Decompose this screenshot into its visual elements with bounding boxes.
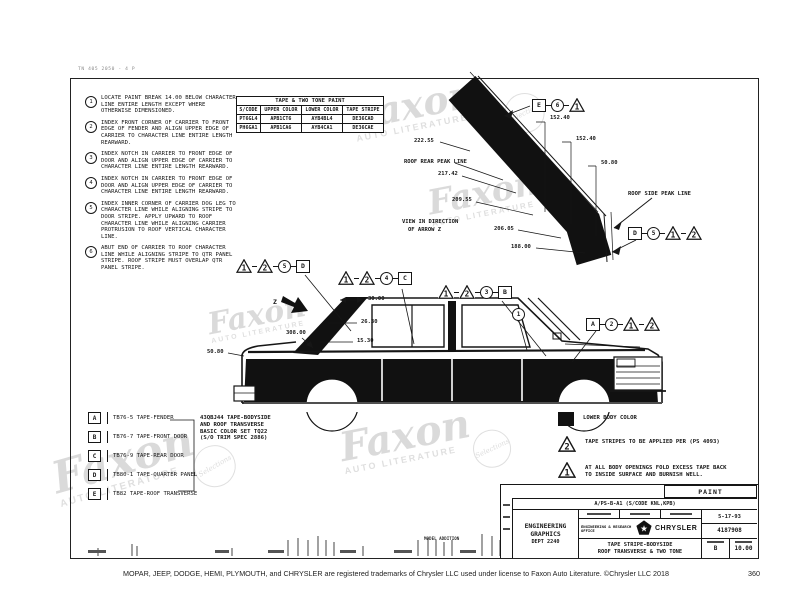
part-row: ATB76-5 TAPE-FENDER — [88, 412, 197, 424]
lower-body-color-label: LOWER BODY COLOR — [583, 412, 637, 422]
note-number: 3 — [85, 152, 97, 164]
square-callout-icon: B — [498, 286, 512, 299]
paint-table-title: TAPE & TWO TONE PAINT — [237, 97, 384, 106]
svg-text:1: 1 — [344, 276, 349, 285]
dim-217-42: 217.42 — [438, 171, 458, 177]
sheet-cell: B — [701, 539, 729, 558]
square-callout-icon: C — [398, 272, 412, 285]
dim-152-40-a: 152.40 — [550, 115, 570, 121]
circle-callout-icon: 4 — [380, 272, 393, 285]
parts-note-line: 43QBJ44 TAPE-BODYSIDE — [200, 415, 271, 422]
dim-50-80-rear: 50.80 — [207, 349, 224, 355]
tape-stripe-note: TAPE STRIPES TO BE APPLIED PER (PS 4093) — [585, 436, 720, 446]
note-text: INDEX NOTCH IN CARRIER TO FRONT EDGE OF … — [101, 176, 237, 196]
part-code-box: A — [88, 412, 101, 424]
roof-rear-peak-line-label: ROOF REAR PEAK LINE — [404, 159, 467, 165]
fold-note-line: TO INSIDE SURFACE AND BURNISH WELL. — [585, 472, 726, 479]
part-code-box: B — [88, 431, 101, 443]
view-direction-label2: OF ARROW Z — [408, 227, 441, 233]
tape-parts-legend: ATB76-5 TAPE-FENDER BTB76-7 TAPE-FRONT D… — [88, 412, 197, 500]
svg-text:★: ★ — [640, 524, 648, 534]
sheet-value: B — [702, 545, 729, 552]
part-code-box: E — [88, 488, 101, 500]
drawing-title-cell: TAPE STRIPE-BODYSIDE ROOF TRANSVERSE & T… — [579, 539, 701, 558]
roof-side-callout-group: D512 — [628, 226, 702, 240]
triangle-callout-icon: 1 — [665, 226, 681, 240]
roof-side-peak-line-label: ROOF SIDE PEAK LINE — [628, 191, 691, 197]
fold-tape-note: AT ALL BODY OPENINGS FOLD EXCESS TAPE BA… — [585, 462, 726, 478]
view-z-arrow — [281, 296, 308, 313]
basic-color-set-note: 43QBJ44 TAPE-BODYSIDE AND ROOF TRANSVERS… — [200, 415, 271, 442]
triangle-callout-icon: 1 — [236, 259, 252, 273]
pentastar-logo-icon: ★ — [636, 520, 652, 538]
lower-body-color-row: LOWER BODY COLOR — [558, 412, 726, 426]
title-block-side-strip — [501, 498, 513, 558]
note-number: 2 — [85, 121, 97, 133]
part-code-box: D — [88, 469, 101, 481]
part-row: BTB76-7 TAPE-FRONT DOOR — [88, 431, 197, 443]
circle-callout-icon: 3 — [480, 286, 493, 299]
parts-note-line: (S/O TRIM SPEC 2886) — [200, 435, 271, 442]
fender-callout-group: A212 — [586, 317, 660, 331]
part-desc: TB82 TAPE-ROOF TRANSVERSE — [107, 488, 197, 500]
note-text: INDEX NOTCH IN CARRIER TO FRONT EDGE OF … — [101, 151, 237, 171]
drawing-title-line: TAPE STRIPE-BODYSIDE — [608, 542, 673, 548]
note-text: INDEX INNER CORNER OF CARRIER DOG LEG TO… — [101, 201, 237, 241]
note-item: 2INDEX FRONT CORNER OF CARRIER TO FRONT … — [85, 120, 237, 146]
svg-text:1: 1 — [671, 231, 676, 240]
part-row: ETB82 TAPE-ROOF TRANSVERSE — [88, 488, 197, 500]
svg-text:1: 1 — [629, 322, 634, 331]
dim-209-55: 209.55 — [452, 197, 472, 203]
parts-note-line: AND ROOF TRANSVERSE — [200, 422, 271, 429]
paint-table-header: S/CODE — [237, 106, 261, 115]
date-cell: 5-17-93 — [701, 510, 757, 524]
dim-26-30: 26.30 — [361, 319, 378, 325]
triangle-1-symbol: 1 — [558, 462, 576, 478]
paint-table-cell: AYB4CA1 — [301, 124, 342, 133]
svg-text:1: 1 — [564, 468, 569, 478]
triangle-callout-icon: 1 — [569, 98, 585, 112]
note-item: 1LOCATE PAINT BREAK 14.00 BELOW CHARACTE… — [85, 95, 237, 115]
paint-table-cell: DE36CAE — [342, 124, 383, 133]
triangle-callout-icon: 2 — [686, 226, 702, 240]
note-item: 4INDEX NOTCH IN CARRIER TO FRONT EDGE OF… — [85, 176, 237, 196]
drawing-number-cell: 4187908 — [701, 524, 757, 539]
application-notes-list: 1LOCATE PAINT BREAK 14.00 BELOW CHARACTE… — [85, 95, 237, 272]
svg-text:2: 2 — [650, 322, 655, 331]
paint-table-cell: DE36CAD — [342, 115, 383, 124]
triangle-callout-icon: 2 — [359, 271, 375, 285]
paint-table-header: TAPE STRIPE — [342, 106, 383, 115]
note-text: ABUT END OF CARRIER TO ROOF CHARACTER LI… — [101, 245, 237, 271]
note-number: 4 — [85, 177, 97, 189]
paint-break-callout: 1 — [512, 308, 525, 321]
note-text: INDEX FRONT CORNER OF CARRIER TO FRONT E… — [101, 120, 237, 146]
square-callout-icon: D — [628, 227, 642, 240]
office-label: ENGINEERING & RESEARCH OFFICE — [581, 525, 633, 533]
square-callout-icon: A — [586, 318, 600, 331]
paint-table-cell: AYB4BL4 — [301, 115, 342, 124]
triangle-callout-icon: 2 — [257, 259, 273, 273]
scale-cell: 10.00 — [729, 539, 757, 558]
dim-30-00: 30.00 — [368, 296, 385, 302]
paint-table-header: LOWER COLOR — [301, 106, 342, 115]
svg-text:2: 2 — [564, 442, 569, 452]
note-text: LOCATE PAINT BREAK 14.00 BELOW CHARACTER… — [101, 95, 237, 115]
chrysler-wordmark: CHRYSLER — [655, 525, 697, 532]
fold-note-line: AT ALL BODY OPENINGS FOLD EXCESS TAPE BA… — [585, 465, 726, 472]
svg-text:2: 2 — [263, 264, 268, 273]
part-desc: TB76-5 TAPE-FENDER — [107, 412, 174, 424]
dim-308-00: 308.00 — [286, 330, 306, 336]
part-row: DTB80-1 TAPE-QUARTER PANEL — [88, 469, 197, 481]
dept-line: GRAPHICS — [530, 531, 560, 538]
front-door-callout-group: 123B — [438, 285, 512, 299]
page-number: 360 — [748, 569, 760, 578]
circle-callout-icon: 1 — [512, 308, 525, 321]
note-item: 3INDEX NOTCH IN CARRIER TO FRONT EDGE OF… — [85, 151, 237, 171]
roof-tape-callout-group: E61 — [532, 98, 585, 112]
scan-corner-note: TN 405 2050 - 4 P — [78, 67, 135, 72]
dim-188-00: 188.00 — [511, 244, 531, 250]
view-direction-label: VIEW IN DIRECTION — [402, 219, 458, 225]
circle-callout-icon: 2 — [605, 318, 618, 331]
svg-text:2: 2 — [365, 276, 370, 285]
dim-15-30: 15.30 — [357, 338, 374, 344]
triangle-callout-icon: 1 — [438, 285, 454, 299]
drawing-title-line: ROOF TRANSVERSE & TWO TONE — [598, 549, 682, 555]
parts-note-line: BASIC COLOR SET TQ22 — [200, 429, 271, 436]
svg-text:2: 2 — [465, 290, 470, 299]
part-code-box: C — [88, 450, 101, 462]
paint-table-cell: APB1CT6 — [260, 115, 301, 124]
rear-door-callout-group: 124C — [338, 271, 412, 285]
trademark-footer: MOPAR, JEEP, DODGE, HEMI, PLYMOUTH, and … — [0, 569, 792, 578]
paint-table-cell: APB1CA6 — [260, 124, 301, 133]
circle-callout-icon: 5 — [647, 227, 660, 240]
scale-value: 10.00 — [730, 545, 757, 552]
part-desc: TB76-9 TAPE-REAR DOOR — [107, 450, 184, 462]
triangle-callout-icon: 1 — [338, 271, 354, 285]
office-logo-row: ENGINEERING & RESEARCH OFFICE ★ CHRYSLER — [579, 519, 701, 539]
title-block: PAINT A/PS-B-A1 (S/CODE KNL,KPB) ENGINEE… — [500, 484, 758, 558]
paint-table-header: UPPER COLOR — [260, 106, 301, 115]
svg-text:2: 2 — [692, 231, 697, 240]
circle-callout-icon: 5 — [278, 260, 291, 273]
svg-text:1: 1 — [242, 264, 247, 273]
circle-callout-icon: 6 — [551, 99, 564, 112]
fold-tape-note-row: 1 AT ALL BODY OPENINGS FOLD EXCESS TAPE … — [558, 462, 726, 478]
paint-cell: PAINT — [664, 485, 757, 498]
triangle-callout-icon: 2 — [644, 317, 660, 331]
arrow-z-label: Z — [273, 298, 277, 306]
svg-text:1: 1 — [575, 103, 580, 112]
note-item: 5INDEX INNER CORNER OF CARRIER DOG LEG T… — [85, 201, 237, 241]
part-desc: TB76-7 TAPE-FRONT DOOR — [107, 431, 187, 443]
square-callout-icon: E — [532, 99, 546, 112]
note-number: 1 — [85, 96, 97, 108]
note-number: 6 — [85, 246, 97, 258]
note-item: 6ABUT END OF CARRIER TO ROOF CHARACTER L… — [85, 245, 237, 271]
note-number: 5 — [85, 202, 97, 214]
dept-line: ENGINEERING — [525, 523, 567, 530]
dept-cell: ENGINEERING GRAPHICS DEPT 2240 — [513, 510, 579, 558]
part-desc: TB80-1 TAPE-QUARTER PANEL — [107, 469, 197, 481]
dept-line: DEPT 2240 — [531, 539, 559, 545]
triangle-callout-icon: 2 — [459, 285, 475, 299]
square-callout-icon: D — [296, 260, 310, 273]
tape-two-tone-paint-table: TAPE & TWO TONE PAINT S/CODE UPPER COLOR… — [236, 96, 384, 133]
revision-strip-note: MODEL ADDITION — [424, 536, 459, 541]
tape-stripe-note-row: 2 TAPE STRIPES TO BE APPLIED PER (PS 409… — [558, 436, 726, 452]
symbols-legend: LOWER BODY COLOR 2 TAPE STRIPES TO BE AP… — [558, 412, 726, 478]
paint-table-cell: PT6GL4 — [237, 115, 261, 124]
dim-152-40-b: 152.40 — [576, 136, 596, 142]
dim-222-55: 222.55 — [414, 138, 434, 144]
paint-table-cell: PH6GA1 — [237, 124, 261, 133]
drawing-code-line: A/PS-B-A1 (S/CODE KNL,KPB) — [513, 498, 757, 510]
scanned-engineering-drawing-page: Faxon AUTO LITERATURE Selections Faxon A… — [0, 0, 792, 612]
triangle-callout-icon: 1 — [623, 317, 639, 331]
dim-206-05: 206.05 — [494, 226, 514, 232]
part-row: CTB76-9 TAPE-REAR DOOR — [88, 450, 197, 462]
quarter-panel-callout-group: 125D — [236, 259, 310, 273]
dim-50-80: 50.80 — [601, 160, 618, 166]
filled-square-swatch — [558, 412, 574, 426]
svg-text:1: 1 — [444, 290, 449, 299]
triangle-2-symbol: 2 — [558, 436, 576, 452]
title-block-mini-headers — [579, 510, 701, 519]
